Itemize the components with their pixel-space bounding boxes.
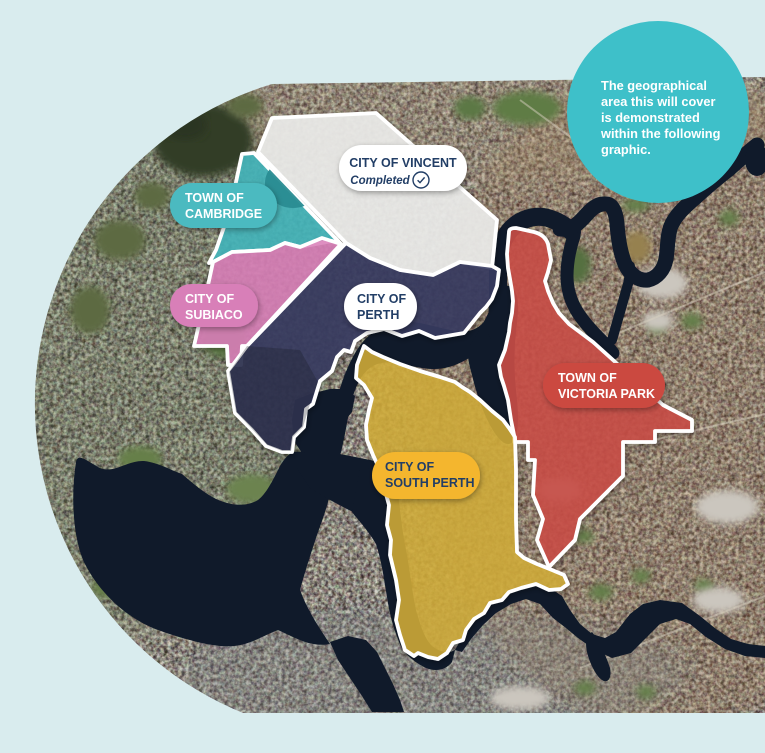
svg-text:The geographical: The geographical [601, 78, 707, 93]
svg-text:CITY OF VINCENT: CITY OF VINCENT [349, 156, 457, 170]
svg-text:SUBIACO: SUBIACO [185, 308, 243, 322]
svg-text:TOWN OF: TOWN OF [185, 191, 244, 205]
svg-text:CITY OF: CITY OF [185, 292, 234, 306]
svg-text:is demonstrated: is demonstrated [601, 110, 700, 125]
svg-text:PERTH: PERTH [357, 308, 399, 322]
svg-text:area this will cover: area this will cover [601, 94, 716, 109]
svg-text:SOUTH PERTH: SOUTH PERTH [385, 476, 475, 490]
svg-text:CITY OF: CITY OF [385, 460, 434, 474]
svg-text:graphic.: graphic. [601, 142, 651, 157]
svg-text:CITY OF: CITY OF [357, 292, 406, 306]
svg-text:VICTORIA PARK: VICTORIA PARK [558, 387, 655, 401]
svg-text:Completed: Completed [350, 175, 410, 187]
svg-text:CAMBRIDGE: CAMBRIDGE [185, 207, 262, 221]
svg-text:TOWN OF: TOWN OF [558, 371, 617, 385]
svg-text:within the following: within the following [600, 126, 720, 141]
